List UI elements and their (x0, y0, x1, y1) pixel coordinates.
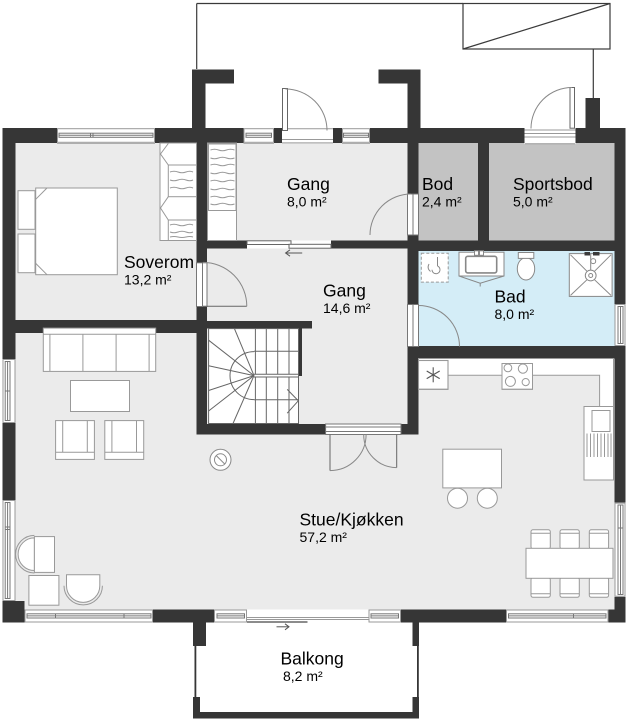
svg-text:57,2 m²: 57,2 m² (300, 529, 348, 545)
svg-text:Gang: Gang (287, 174, 330, 194)
svg-text:Stue/Kjøkken: Stue/Kjøkken (300, 510, 404, 530)
svg-text:Soverom: Soverom (124, 252, 194, 272)
svg-text:Balkong: Balkong (281, 649, 344, 669)
svg-text:14,6 m²: 14,6 m² (323, 300, 371, 316)
svg-text:Gang: Gang (323, 281, 366, 301)
svg-text:Bad: Bad (495, 287, 526, 307)
svg-text:8,0 m²: 8,0 m² (495, 306, 535, 322)
svg-text:5,0 m²: 5,0 m² (513, 194, 553, 210)
svg-text:Bod: Bod (422, 174, 453, 194)
svg-text:2,4 m²: 2,4 m² (422, 194, 462, 210)
svg-text:8,0 m²: 8,0 m² (287, 194, 327, 210)
svg-text:8,2 m²: 8,2 m² (283, 668, 323, 684)
svg-text:13,2 m²: 13,2 m² (124, 272, 172, 288)
svg-text:Sportsbod: Sportsbod (513, 174, 593, 194)
